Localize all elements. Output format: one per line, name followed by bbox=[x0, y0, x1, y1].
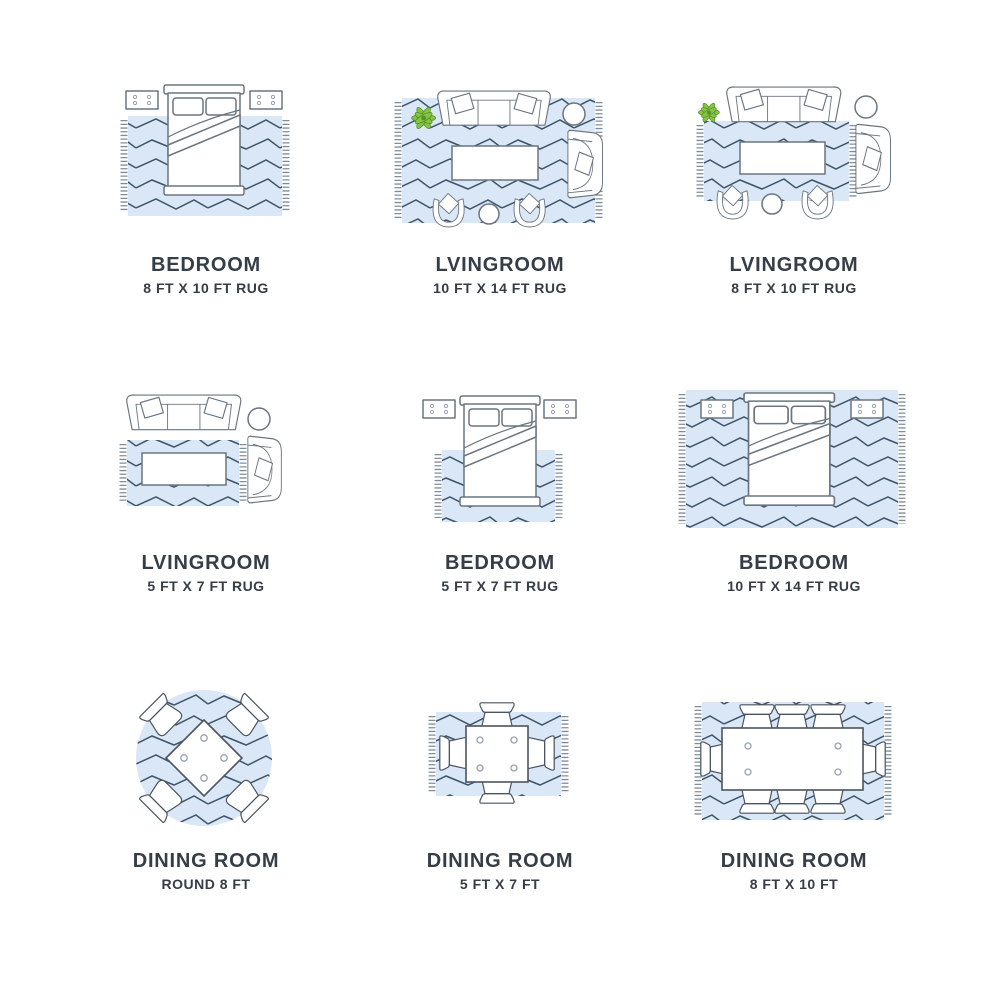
cell-livingroom-10x14: LVINGROOM 10 FT X 14 FT RUG bbox=[358, 76, 642, 374]
bed-icon bbox=[744, 393, 834, 505]
dining-table bbox=[466, 726, 528, 782]
scene-livingroom-5x7 bbox=[64, 374, 348, 540]
room-title: LVINGROOM bbox=[141, 552, 270, 575]
coffee-table bbox=[740, 142, 825, 174]
side-table bbox=[479, 204, 499, 224]
nightstand-icon bbox=[544, 400, 576, 418]
armchair-icon bbox=[856, 124, 891, 193]
side-table bbox=[855, 96, 877, 118]
scene-diningroom-5x7 bbox=[358, 672, 642, 838]
scene-bedroom-5x7 bbox=[358, 374, 642, 540]
room-title: DINING ROOM bbox=[133, 850, 280, 873]
rug-size-text: 10 FT X 14 FT RUG bbox=[727, 578, 861, 594]
coffee-table bbox=[452, 146, 538, 180]
rug-size-text: 5 FT X 7 FT RUG bbox=[441, 578, 558, 594]
rug-size-text: ROUND 8 FT bbox=[133, 876, 280, 892]
label: DINING ROOM 8 FT X 10 FT bbox=[721, 850, 868, 892]
room-title: BEDROOM bbox=[727, 552, 861, 575]
cell-diningroom-5x7: DINING ROOM 5 FT X 7 FT bbox=[358, 672, 642, 970]
sofa-icon bbox=[438, 91, 551, 125]
armchair-icon bbox=[568, 130, 603, 197]
room-title: DINING ROOM bbox=[721, 850, 868, 873]
rug-size-text: 5 FT X 7 FT bbox=[427, 876, 574, 892]
room-title: DINING ROOM bbox=[427, 850, 574, 873]
nightstand-icon bbox=[423, 400, 455, 418]
rug-size-guide-grid: BEDROOM 8 FT X 10 FT RUG LVINGROOM 10 FT… bbox=[64, 76, 936, 970]
armchair-icon bbox=[248, 436, 282, 503]
scene-livingroom-10x14 bbox=[358, 76, 642, 242]
cell-diningroom-round-8ft: DINING ROOM ROUND 8 FT bbox=[64, 672, 348, 970]
side-table bbox=[248, 408, 270, 430]
room-title: BEDROOM bbox=[143, 254, 268, 277]
cell-bedroom-8x10: BEDROOM 8 FT X 10 FT RUG bbox=[64, 76, 348, 374]
nightstand-icon bbox=[250, 91, 282, 109]
label: LVINGROOM 8 FT X 10 FT RUG bbox=[729, 254, 858, 296]
cell-livingroom-8x10: LVINGROOM 8 FT X 10 FT RUG bbox=[652, 76, 936, 374]
label: LVINGROOM 10 FT X 14 FT RUG bbox=[433, 254, 567, 296]
side-table bbox=[762, 194, 782, 214]
dining-table bbox=[722, 728, 863, 790]
room-title: BEDROOM bbox=[441, 552, 558, 575]
nightstand-icon bbox=[851, 400, 883, 418]
label: DINING ROOM ROUND 8 FT bbox=[133, 850, 280, 892]
nightstand-icon bbox=[701, 400, 733, 418]
coffee-table bbox=[142, 453, 226, 485]
label: BEDROOM 10 FT X 14 FT RUG bbox=[727, 552, 861, 594]
sofa-icon bbox=[127, 395, 241, 430]
label: BEDROOM 5 FT X 7 FT RUG bbox=[441, 552, 558, 594]
scene-diningroom-8x10 bbox=[652, 672, 936, 838]
scene-bedroom-8x10 bbox=[64, 76, 348, 242]
label: LVINGROOM 5 FT X 7 FT RUG bbox=[141, 552, 270, 594]
bed-icon bbox=[164, 85, 244, 195]
nightstand-icon bbox=[126, 91, 158, 109]
rug-size-text: 8 FT X 10 FT bbox=[721, 876, 868, 892]
room-title: LVINGROOM bbox=[729, 254, 858, 277]
side-table bbox=[563, 103, 585, 125]
rug-size-text: 10 FT X 14 FT RUG bbox=[433, 280, 567, 296]
rug-size-text: 5 FT X 7 FT RUG bbox=[141, 578, 270, 594]
plant-icon bbox=[698, 102, 719, 123]
rug-size-text: 8 FT X 10 FT RUG bbox=[729, 280, 858, 296]
bed-icon bbox=[460, 396, 540, 506]
room-title: LVINGROOM bbox=[433, 254, 567, 277]
cell-bedroom-5x7: BEDROOM 5 FT X 7 FT RUG bbox=[358, 374, 642, 672]
scene-diningroom-round-8ft bbox=[64, 672, 348, 838]
cell-diningroom-8x10: DINING ROOM 8 FT X 10 FT bbox=[652, 672, 936, 970]
label: BEDROOM 8 FT X 10 FT RUG bbox=[143, 254, 268, 296]
rug-size-text: 8 FT X 10 FT RUG bbox=[143, 280, 268, 296]
scene-bedroom-10x14 bbox=[652, 374, 936, 540]
cell-bedroom-10x14: BEDROOM 10 FT X 14 FT RUG bbox=[652, 374, 936, 672]
scene-livingroom-8x10 bbox=[652, 76, 936, 242]
sofa-icon bbox=[727, 87, 841, 122]
label: DINING ROOM 5 FT X 7 FT bbox=[427, 850, 574, 892]
cell-livingroom-5x7: LVINGROOM 5 FT X 7 FT RUG bbox=[64, 374, 348, 672]
